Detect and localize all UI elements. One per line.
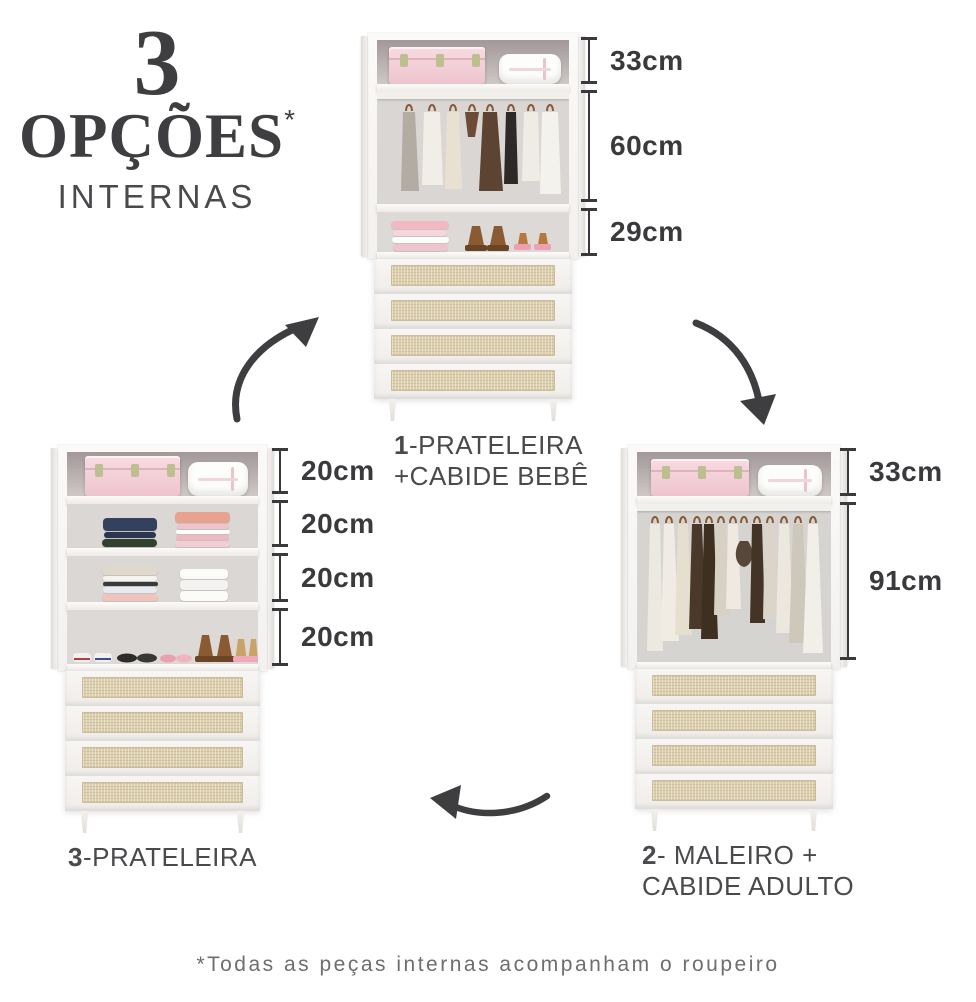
dimension-bracket (838, 502, 858, 660)
rattan-panel (82, 782, 243, 803)
title-word: OPÇÕES* (8, 104, 306, 168)
wardrobe-1-bottom-shelf (377, 212, 569, 252)
adult-clothes-on-hangers (637, 511, 831, 661)
dimension-bracket (270, 608, 290, 666)
rattan-panel (652, 710, 816, 731)
shelf-board (67, 548, 258, 556)
blanket-roll (188, 462, 248, 496)
rattan-panel (82, 677, 243, 698)
dimension-line (279, 449, 282, 493)
furniture-leg (80, 811, 89, 833)
dimension-bracket (579, 208, 599, 256)
blanket-roll (499, 54, 561, 84)
folded-dark-clothes (102, 517, 157, 547)
dimension-w3-shelf1: 20cm (270, 448, 290, 494)
furniture-leg (650, 809, 659, 831)
dimension-bracket (579, 37, 599, 84)
sandals (459, 212, 559, 252)
dimension-line (588, 209, 591, 255)
curved-arrow-up-right-icon (225, 313, 325, 425)
wardrobe-3-shelf-2 (67, 504, 258, 548)
dimension-line (279, 554, 282, 601)
shelf-board (377, 204, 569, 212)
hanging-rod (377, 92, 569, 99)
wardrobe-option-1-figure (368, 33, 578, 425)
rattan-panel (652, 745, 816, 766)
wardrobe-1-hanging-section (377, 92, 569, 204)
drawer (374, 294, 572, 329)
furniture-leg (388, 399, 397, 421)
cabinet-bottom-board (637, 662, 831, 669)
rattan-panel (391, 265, 555, 286)
option-1-label-line1: 1-PRATELEIRA (394, 430, 589, 461)
furniture-leg (809, 809, 818, 831)
dimension-w1-bottom: 29cm (579, 208, 599, 256)
folded-light-clothes (102, 565, 158, 601)
baby-clothes-on-hangers (377, 99, 569, 204)
dimension-value: 20cm (301, 621, 375, 653)
dimension-value: 33cm (869, 456, 943, 488)
drawer (374, 259, 572, 294)
dimension-line (588, 38, 591, 83)
option-3-label-line1: 3-PRATELEIRA (58, 842, 267, 873)
wardrobe-option-2-figure (628, 445, 840, 831)
option-1-name: -PRATELEIRA (409, 430, 583, 460)
folded-white-towels (180, 568, 228, 601)
wardrobe-3-shelf-3 (67, 556, 258, 602)
cabinet-bottom-board (377, 252, 569, 259)
dimension-line (588, 91, 591, 201)
option-1-label-line2: +CABIDE BEBÊ (394, 461, 589, 492)
drawer (374, 364, 572, 399)
shelf-board (637, 496, 831, 504)
title-subtitle: INTERNAS (8, 178, 306, 216)
blanket-roll (758, 465, 822, 496)
shelf-board (377, 84, 569, 92)
option-3-number: 3 (68, 842, 83, 872)
rattan-panel (82, 747, 243, 768)
drawer (65, 776, 260, 811)
rattan-panel (391, 335, 555, 356)
option-1-label: 1-PRATELEIRA +CABIDE BEBÊ (394, 430, 589, 492)
drawer (635, 739, 833, 774)
wardrobe-2-top-shelf (637, 452, 831, 496)
option-2-label-line2: CABIDE ADULTO (642, 871, 854, 902)
dimension-w1-top: 33cm (579, 37, 599, 84)
dimension-bracket (579, 90, 599, 202)
rattan-panel (391, 370, 555, 391)
wardrobe-3-drawer-unit (65, 671, 260, 811)
option-2-label: 2- MALEIRO + CABIDE ADULTO (642, 840, 854, 902)
option-2-name: - MALEIRO + (657, 840, 818, 870)
dimension-value: 29cm (610, 216, 684, 248)
wardrobe-1-left-door-edge (361, 36, 367, 256)
dimension-w2-top: 33cm (838, 448, 858, 496)
option-2-number: 2 (642, 840, 657, 870)
curved-arrow-left-icon (425, 780, 555, 830)
wardrobe-2-cabinet (628, 445, 840, 669)
dimension-bracket (270, 448, 290, 494)
dimension-value: 33cm (610, 45, 684, 77)
wardrobe-3-shelf-4 (67, 610, 258, 664)
dimension-bracket (270, 500, 290, 547)
wardrobe-1-cabinet (368, 33, 578, 259)
option-1-number: 1 (394, 430, 409, 460)
wardrobe-3-shelf-1 (67, 452, 258, 496)
wardrobe-2-drawer-unit (635, 669, 833, 809)
dimension-value: 20cm (301, 455, 375, 487)
wardrobe-1-top-shelf (377, 40, 569, 84)
dimension-line (847, 503, 850, 659)
title-block: 3 OPÇÕES* INTERNAS (8, 24, 306, 216)
wardrobe-1-drawer-unit (374, 259, 572, 399)
drawer (635, 669, 833, 704)
rattan-panel (652, 675, 816, 696)
wardrobe-options-infographic: 3 OPÇÕES* INTERNAS (0, 0, 976, 1002)
wardrobe-3-cabinet (58, 445, 267, 671)
folded-pink-clothes (175, 511, 230, 547)
dimension-line (279, 609, 282, 665)
title-asterisk: * (284, 104, 295, 135)
cabinet-bottom-board (67, 664, 258, 671)
drawer (374, 329, 572, 364)
option-3-name: -PRATELEIRA (83, 842, 257, 872)
dimension-w3-shelf4: 20cm (270, 608, 290, 666)
dimension-value: 91cm (869, 565, 943, 597)
dimension-bracket (838, 448, 858, 496)
wardrobe-2-hanging-section (637, 504, 831, 662)
footnote: *Todas as peças internas acompanham o ro… (0, 953, 976, 977)
shoe-row (67, 612, 258, 664)
drawer (65, 741, 260, 776)
dimension-value: 20cm (301, 508, 375, 540)
option-2-label-line1: 2- MALEIRO + (642, 840, 854, 871)
rattan-panel (82, 712, 243, 733)
drawer (635, 704, 833, 739)
title-number: 3 (8, 24, 306, 104)
shelf-board (67, 496, 258, 504)
dimension-w3-shelf2: 20cm (270, 500, 290, 547)
drawer (65, 706, 260, 741)
dimension-w1-middle: 60cm (579, 90, 599, 202)
drawer (635, 774, 833, 809)
option-3-label: 3-PRATELEIRA (58, 842, 267, 873)
dimension-bracket (270, 553, 290, 602)
pink-trunk (389, 47, 485, 84)
furniture-leg (549, 399, 558, 421)
title-word-text: OPÇÕES (19, 101, 284, 171)
hanging-rod (637, 504, 831, 511)
drawer (65, 671, 260, 706)
folded-pink-clothes (391, 220, 449, 251)
rattan-panel (391, 300, 555, 321)
pink-trunk (651, 459, 749, 496)
dimension-w3-shelf3: 20cm (270, 553, 290, 602)
wardrobe-3-left-door-edge (51, 448, 57, 668)
dimension-line (279, 501, 282, 546)
furniture-leg (236, 811, 245, 833)
rattan-panel (652, 780, 816, 801)
dimension-value: 60cm (610, 130, 684, 162)
wardrobe-option-3-figure (58, 445, 267, 833)
dimension-w2-hanging: 91cm (838, 502, 858, 660)
dimension-line (847, 449, 850, 495)
dimension-value: 20cm (301, 562, 375, 594)
wardrobe-2-left-door-edge (621, 448, 627, 666)
pink-trunk (85, 456, 180, 496)
shelf-board (67, 602, 258, 610)
curved-arrow-down-right-icon (688, 315, 788, 427)
